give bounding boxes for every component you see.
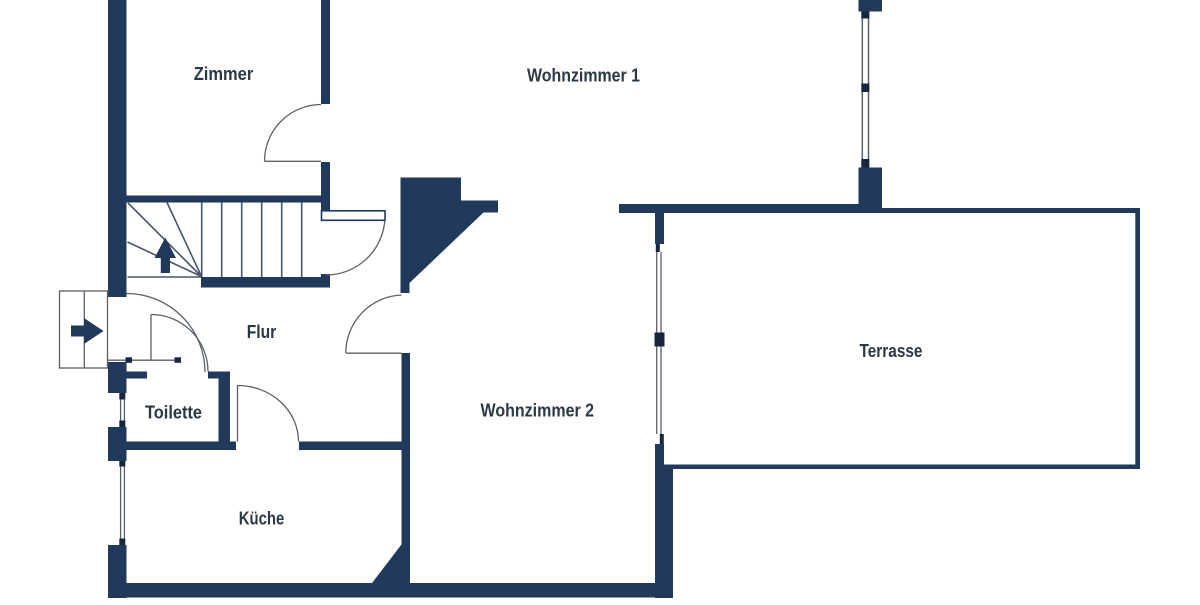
svg-text:Wohnzimmer 2: Wohnzimmer 2 [481, 401, 595, 421]
svg-text:Küche: Küche [239, 509, 285, 529]
svg-text:Terrasse: Terrasse [860, 341, 923, 361]
svg-text:Zimmer: Zimmer [194, 64, 254, 84]
svg-text:Flur: Flur [247, 322, 277, 342]
svg-text:Toilette: Toilette [145, 403, 202, 423]
svg-text:Wohnzimmer 1: Wohnzimmer 1 [527, 66, 640, 86]
